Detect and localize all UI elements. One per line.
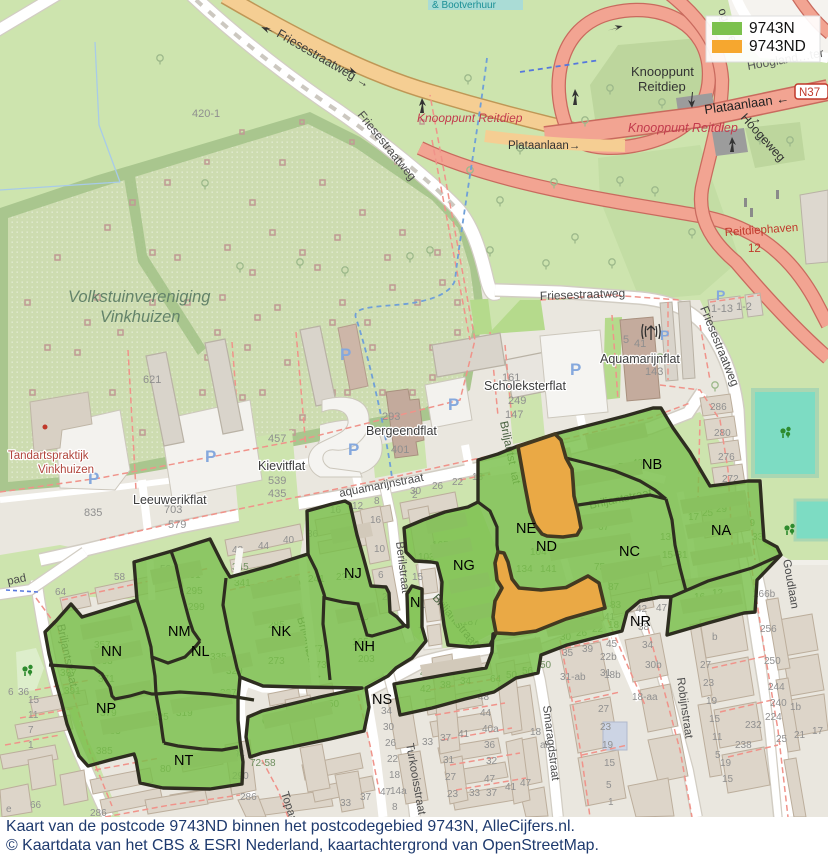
svg-text:14a: 14a bbox=[390, 786, 407, 797]
svg-text:280: 280 bbox=[714, 428, 731, 439]
svg-text:10: 10 bbox=[374, 544, 386, 555]
svg-text:238: 238 bbox=[735, 740, 752, 751]
svg-text:256: 256 bbox=[760, 624, 777, 635]
svg-text:1: 1 bbox=[28, 740, 34, 751]
svg-text:19: 19 bbox=[720, 758, 732, 769]
svg-text:NL: NL bbox=[191, 644, 210, 660]
svg-text:27: 27 bbox=[445, 772, 457, 783]
svg-text:9743ND: 9743ND bbox=[749, 38, 806, 55]
svg-text:703: 703 bbox=[164, 504, 182, 516]
svg-text:22: 22 bbox=[387, 754, 399, 765]
svg-text:Aquamarijnflat: Aquamarijnflat bbox=[600, 352, 680, 366]
svg-text:47: 47 bbox=[484, 774, 496, 785]
svg-text:7: 7 bbox=[28, 725, 34, 736]
svg-text:31-ab: 31-ab bbox=[560, 672, 586, 683]
svg-text:147: 147 bbox=[505, 409, 523, 421]
svg-text:1-2: 1-2 bbox=[736, 301, 752, 313]
svg-text:Vinkhuizen: Vinkhuizen bbox=[100, 308, 180, 326]
svg-text:12: 12 bbox=[352, 501, 364, 512]
svg-text:Reitdiep: Reitdiep bbox=[638, 79, 686, 94]
svg-text:19: 19 bbox=[706, 696, 718, 707]
svg-text:11: 11 bbox=[28, 710, 39, 721]
svg-text:143: 143 bbox=[645, 366, 663, 378]
svg-text:835: 835 bbox=[84, 507, 102, 519]
svg-text:6: 6 bbox=[8, 687, 14, 698]
svg-text:41: 41 bbox=[505, 782, 517, 793]
svg-text:23: 23 bbox=[703, 678, 715, 689]
svg-text:e: e bbox=[6, 804, 12, 815]
svg-text:P: P bbox=[205, 447, 216, 466]
svg-text:18b: 18b bbox=[604, 670, 621, 681]
svg-text:30: 30 bbox=[410, 486, 422, 497]
svg-text:240: 240 bbox=[770, 698, 787, 709]
svg-text:30b: 30b bbox=[645, 660, 662, 671]
svg-text:15: 15 bbox=[604, 758, 616, 769]
svg-text:Volkstuinvereniging: Volkstuinvereniging bbox=[68, 288, 211, 306]
svg-text:23: 23 bbox=[600, 722, 612, 733]
svg-text:47: 47 bbox=[656, 603, 668, 614]
svg-text:34: 34 bbox=[642, 640, 654, 651]
svg-text:40a: 40a bbox=[482, 724, 499, 735]
svg-text:579: 579 bbox=[168, 519, 186, 531]
svg-text:30: 30 bbox=[383, 722, 395, 733]
svg-text:25: 25 bbox=[776, 734, 788, 745]
svg-text:15: 15 bbox=[709, 714, 721, 725]
svg-text:b: b bbox=[712, 632, 718, 643]
svg-text:6: 6 bbox=[378, 570, 384, 581]
svg-text:1b: 1b bbox=[790, 702, 802, 713]
svg-text:39: 39 bbox=[582, 644, 594, 655]
svg-text:15: 15 bbox=[722, 774, 734, 785]
svg-text:33: 33 bbox=[422, 737, 434, 748]
svg-text:16: 16 bbox=[370, 515, 382, 526]
svg-text:NA: NA bbox=[711, 523, 731, 539]
svg-text:72-58: 72-58 bbox=[250, 758, 276, 769]
svg-text:19: 19 bbox=[602, 740, 614, 751]
svg-text:44: 44 bbox=[258, 541, 270, 552]
svg-text:27: 27 bbox=[700, 660, 712, 671]
svg-text:224: 224 bbox=[765, 712, 782, 723]
svg-text:NS: NS bbox=[372, 692, 392, 708]
svg-text:NT: NT bbox=[174, 753, 193, 769]
svg-text:37: 37 bbox=[360, 792, 372, 803]
svg-text:12: 12 bbox=[748, 243, 761, 255]
svg-text:40: 40 bbox=[283, 535, 295, 546]
svg-text:23: 23 bbox=[447, 789, 459, 800]
svg-text:ND: ND bbox=[536, 539, 557, 555]
svg-text:NG: NG bbox=[453, 558, 475, 574]
svg-text:21: 21 bbox=[794, 730, 806, 741]
svg-text:26: 26 bbox=[385, 738, 397, 749]
svg-text:P: P bbox=[348, 440, 359, 459]
svg-text:P: P bbox=[716, 287, 725, 303]
svg-text:1: 1 bbox=[608, 797, 614, 808]
svg-text:31: 31 bbox=[443, 755, 455, 766]
svg-text:P: P bbox=[340, 345, 351, 364]
svg-text:P: P bbox=[570, 360, 581, 379]
svg-text:50: 50 bbox=[540, 660, 552, 671]
svg-text:33: 33 bbox=[469, 788, 481, 799]
svg-text:15: 15 bbox=[412, 572, 424, 583]
svg-text:18-aa: 18-aa bbox=[632, 692, 658, 703]
svg-text:457: 457 bbox=[268, 433, 286, 445]
svg-text:293: 293 bbox=[382, 411, 400, 423]
svg-text:22b: 22b bbox=[600, 652, 617, 663]
svg-text:64: 64 bbox=[55, 587, 67, 598]
svg-text:& Bootverhuur: & Bootverhuur bbox=[432, 0, 497, 11]
svg-text:15: 15 bbox=[28, 695, 40, 706]
svg-text:Kievitflat: Kievitflat bbox=[258, 459, 306, 473]
svg-text:35: 35 bbox=[562, 648, 574, 659]
svg-text:5: 5 bbox=[606, 780, 612, 791]
svg-text:66: 66 bbox=[30, 800, 42, 811]
svg-text:Tandartspraktijk: Tandartspraktijk bbox=[8, 450, 89, 462]
svg-text:420-1: 420-1 bbox=[192, 108, 220, 120]
svg-text:NP: NP bbox=[96, 701, 116, 717]
svg-text:NJ: NJ bbox=[344, 566, 362, 582]
svg-text:45: 45 bbox=[606, 639, 618, 650]
svg-text:NB: NB bbox=[642, 457, 662, 473]
svg-text:Knooppunt: Knooppunt bbox=[631, 64, 694, 79]
svg-text:NH: NH bbox=[354, 639, 375, 655]
svg-text:249: 249 bbox=[508, 395, 526, 407]
svg-text:36: 36 bbox=[484, 740, 496, 751]
svg-text:NM: NM bbox=[168, 624, 191, 640]
svg-text:276: 276 bbox=[718, 452, 735, 463]
svg-text:401: 401 bbox=[391, 444, 409, 456]
svg-text:Bergeendflat: Bergeendflat bbox=[366, 424, 437, 438]
svg-text:539: 539 bbox=[268, 475, 286, 487]
svg-text:8: 8 bbox=[374, 496, 380, 507]
svg-text:286: 286 bbox=[710, 402, 727, 413]
svg-text:5: 5 bbox=[623, 334, 629, 346]
svg-text:8: 8 bbox=[392, 802, 398, 813]
svg-text:NE: NE bbox=[516, 521, 536, 537]
svg-text:NR: NR bbox=[630, 614, 651, 630]
svg-text:33: 33 bbox=[340, 798, 352, 809]
svg-text:NK: NK bbox=[271, 624, 291, 640]
svg-text:232: 232 bbox=[745, 720, 762, 731]
svg-text:NN: NN bbox=[101, 644, 122, 660]
svg-text:435: 435 bbox=[268, 488, 286, 500]
svg-text:Scholeksterflat: Scholeksterflat bbox=[484, 379, 567, 393]
svg-text:621: 621 bbox=[143, 374, 161, 386]
svg-text:41: 41 bbox=[634, 338, 646, 350]
svg-text:N37: N37 bbox=[799, 87, 820, 99]
svg-text:47: 47 bbox=[520, 778, 532, 789]
svg-text:250: 250 bbox=[764, 656, 781, 667]
svg-text:Knooppunt Reitdiep: Knooppunt Reitdiep bbox=[628, 121, 738, 135]
svg-text:NC: NC bbox=[619, 544, 640, 560]
svg-text:37: 37 bbox=[440, 733, 452, 744]
svg-text:44: 44 bbox=[480, 708, 492, 719]
svg-text:36: 36 bbox=[18, 687, 30, 698]
svg-text:11: 11 bbox=[712, 732, 723, 743]
svg-text:P: P bbox=[448, 395, 459, 414]
svg-text:Plataanlaan→: Plataanlaan→ bbox=[508, 140, 580, 152]
svg-text:P: P bbox=[660, 327, 669, 343]
svg-text:32: 32 bbox=[486, 756, 498, 767]
svg-text:18: 18 bbox=[389, 770, 401, 781]
svg-text:22: 22 bbox=[452, 477, 464, 488]
svg-text:18: 18 bbox=[530, 727, 542, 738]
svg-text:161: 161 bbox=[502, 372, 520, 384]
svg-text:Knooppunt Reitdiep: Knooppunt Reitdiep bbox=[417, 111, 523, 125]
svg-text:286: 286 bbox=[240, 792, 257, 803]
svg-text:244: 244 bbox=[768, 682, 785, 693]
svg-text:41: 41 bbox=[458, 729, 470, 740]
svg-text:286: 286 bbox=[90, 808, 107, 817]
svg-text:27: 27 bbox=[598, 704, 610, 715]
svg-text:17: 17 bbox=[812, 726, 824, 737]
svg-text:37: 37 bbox=[486, 788, 498, 799]
svg-text:aa: aa bbox=[540, 740, 552, 751]
svg-text:58: 58 bbox=[114, 572, 126, 583]
svg-text:Vinkhuizen: Vinkhuizen bbox=[38, 464, 94, 476]
svg-text:26: 26 bbox=[432, 481, 444, 492]
svg-text:Friesestraatweg: Friesestraatweg bbox=[540, 286, 626, 303]
svg-text:9743N: 9743N bbox=[749, 20, 795, 37]
svg-text:N: N bbox=[410, 595, 420, 611]
